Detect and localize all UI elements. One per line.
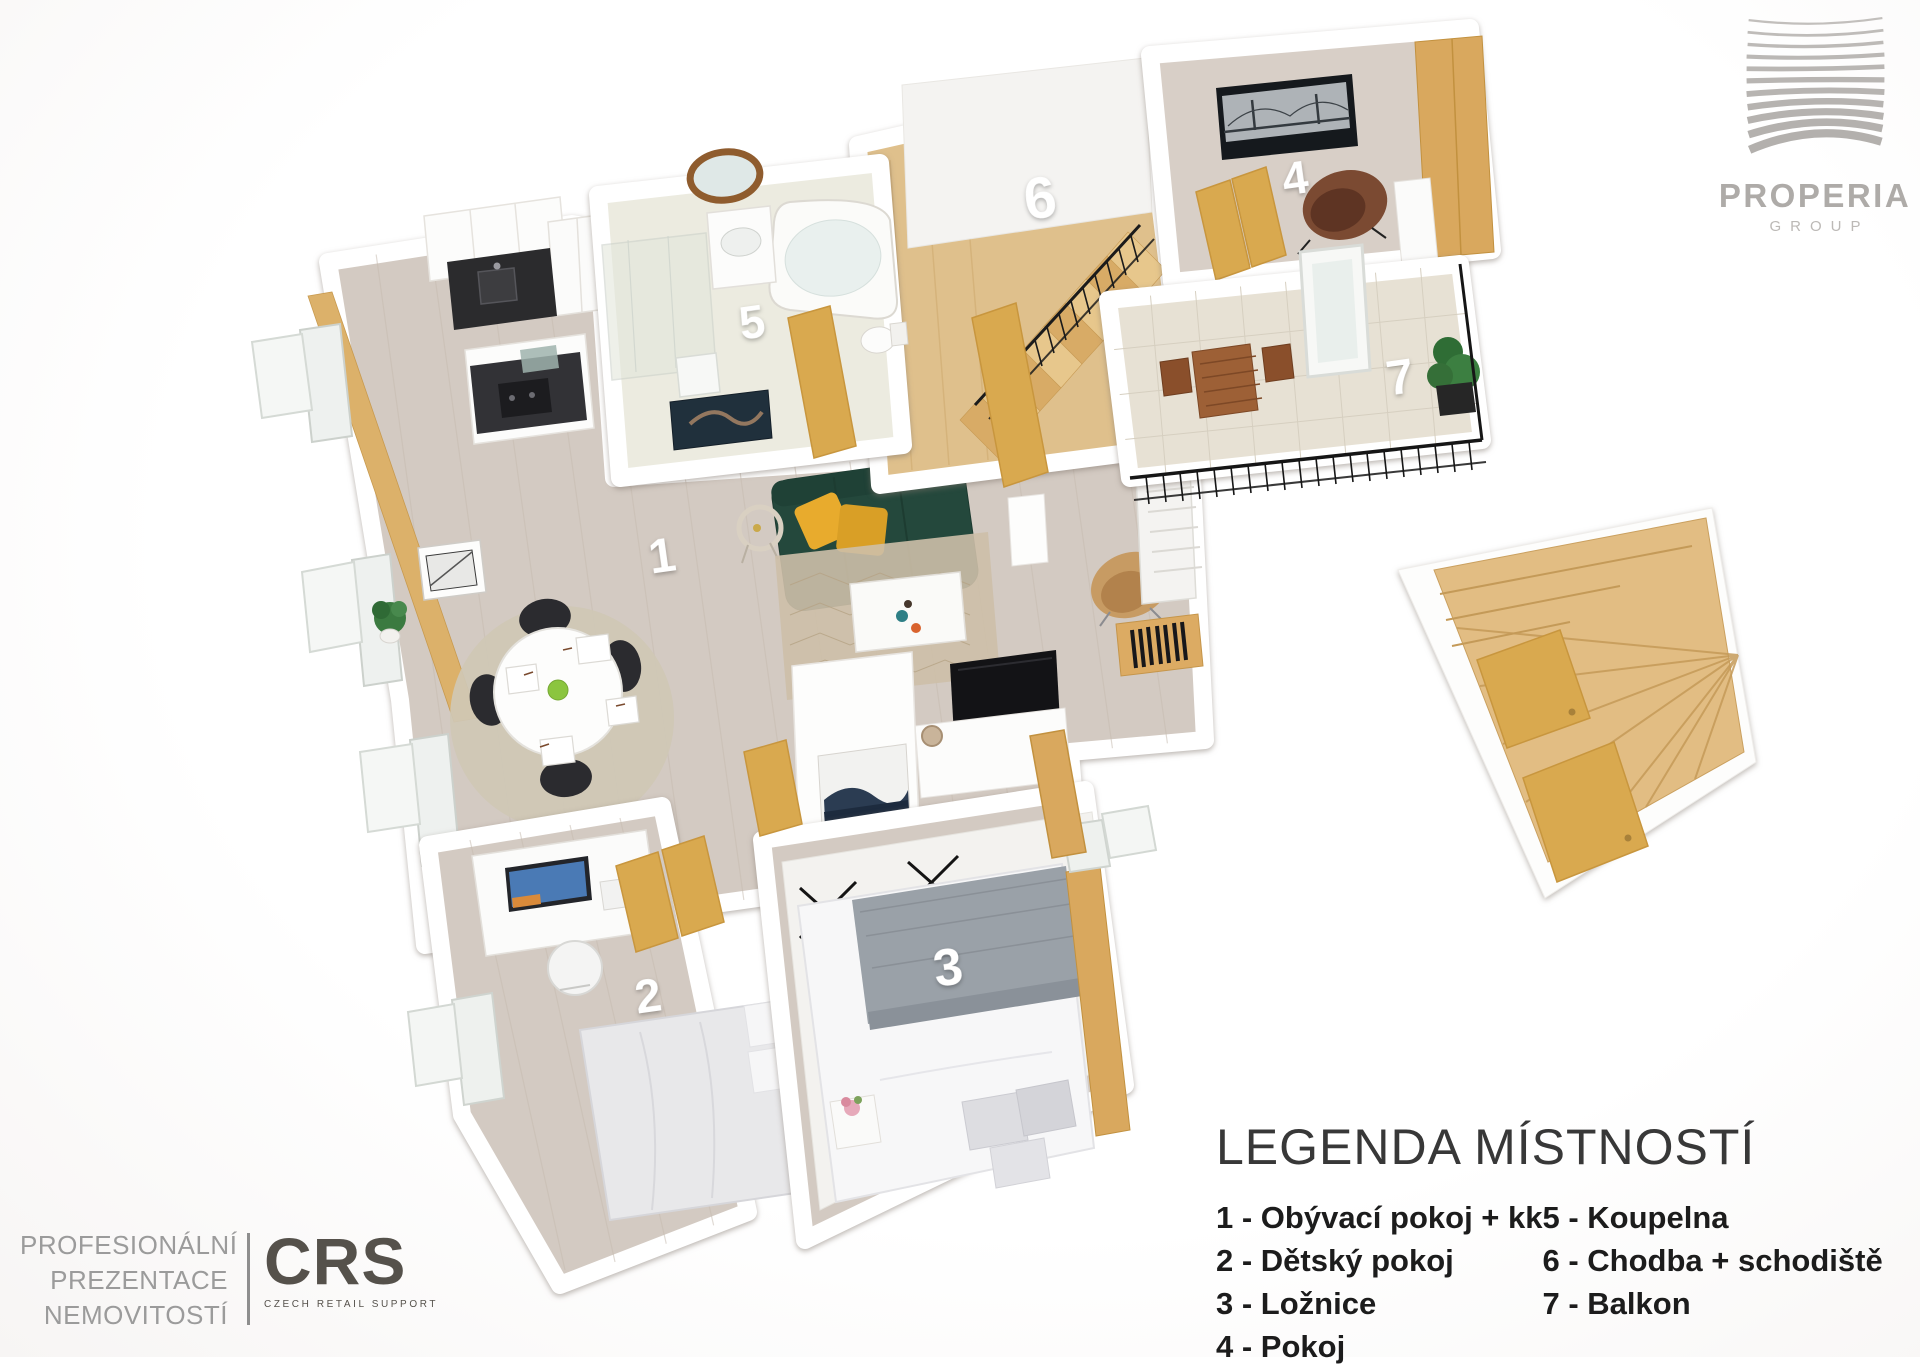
bathroom-chair <box>676 353 720 397</box>
crs-tagline-line-3: NEMOVITOSTÍ <box>20 1298 228 1333</box>
crs-tagline: PROFESIONÁLNÍ PREZENTACE NEMOVITOSTÍ <box>20 1228 228 1333</box>
crs-logo: CRS CZECH RETAIL SUPPORT <box>264 1228 400 1310</box>
kitchen-island <box>465 334 594 444</box>
detached-staircase <box>1398 508 1756 898</box>
legend-item-3: 3 - Ložnice <box>1216 1282 1543 1325</box>
crs-logo-text: CRS <box>264 1228 400 1294</box>
legend-item-5: 5 - Koupelna <box>1543 1196 1883 1239</box>
room-bedroom: 3 <box>762 790 1156 1240</box>
room-legend: LEGENDA MÍSTNOSTÍ 1 - Obývací pokoj + kk… <box>1216 1118 1876 1368</box>
table-lamp <box>922 726 942 746</box>
legend-item-7: 7 - Balkon <box>1543 1282 1883 1325</box>
fruit-bowl <box>548 680 568 700</box>
legend-item-2: 2 - Dětský pokoj <box>1216 1239 1543 1282</box>
kitchen-sink-counter <box>447 248 557 330</box>
window-top-left <box>252 324 352 442</box>
coffee-table <box>850 572 966 652</box>
desk-chair <box>548 941 602 995</box>
legend-item-4: 4 - Pokoj <box>1216 1325 1543 1368</box>
properia-logo: PROPERIA GROUP <box>1700 12 1920 235</box>
legend-item-1: 1 - Obývací pokoj + kk <box>1216 1196 1543 1239</box>
crs-tagline-line-2: PREZENTACE <box>20 1263 228 1298</box>
room-4: 4 <box>1150 28 1494 282</box>
crs-divider <box>247 1233 250 1325</box>
room-bathroom: 5 <box>598 148 908 478</box>
properia-name: PROPERIA <box>1700 177 1920 215</box>
bedside-table <box>830 1095 881 1149</box>
properia-logo-mark <box>1733 12 1898 164</box>
crs-logo-subtitle: CZECH RETAIL SUPPORT <box>264 1299 400 1310</box>
vanity-sink <box>707 206 776 289</box>
balcony-glass-door <box>1300 245 1370 377</box>
bathtub-corner <box>769 200 897 318</box>
double-bed <box>798 864 1130 1202</box>
floorplan-presentation: 1 6 <box>0 0 1920 1357</box>
wall-art-frame <box>418 540 486 600</box>
white-column <box>1008 494 1048 566</box>
bookshelf <box>1116 614 1203 676</box>
legend-item-6: 6 - Chodba + schodiště <box>1543 1239 1883 1282</box>
bridge-photo <box>1216 74 1358 160</box>
legend-title: LEGENDA MÍSTNOSTÍ <box>1216 1118 1876 1176</box>
properia-subtitle: GROUP <box>1700 218 1920 235</box>
crs-tagline-line-1: PROFESIONÁLNÍ <box>20 1228 228 1263</box>
